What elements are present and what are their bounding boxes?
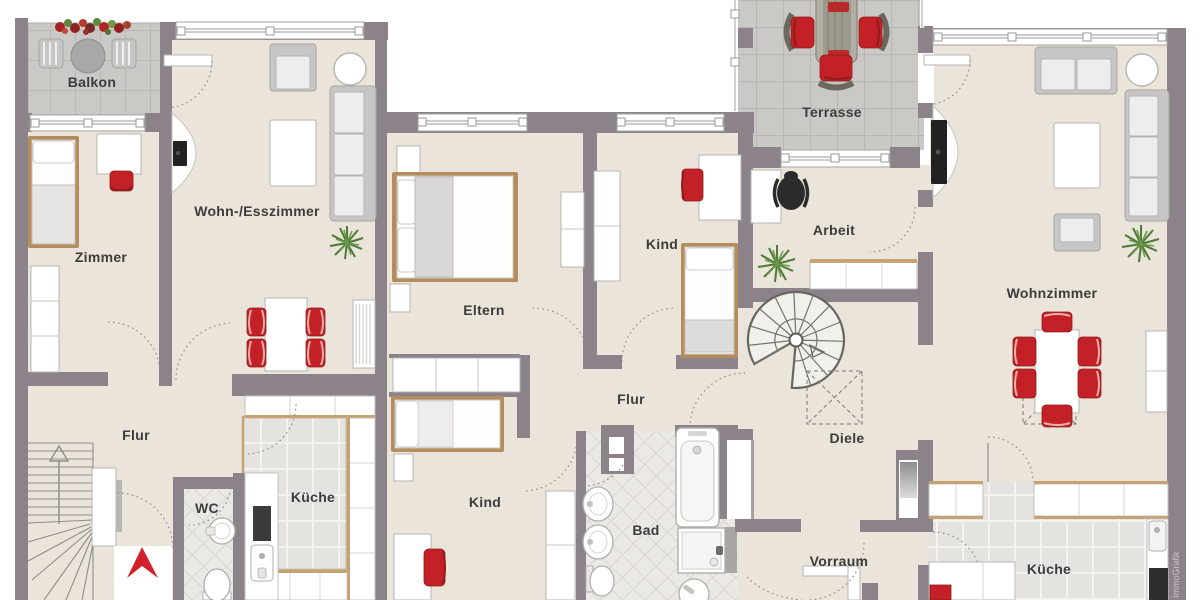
svg-text:Bad: Bad	[632, 522, 659, 538]
svg-text:Vorraum: Vorraum	[810, 553, 869, 569]
svg-text:Flur: Flur	[617, 391, 645, 407]
svg-text:Kind: Kind	[469, 494, 501, 510]
svg-text:WC: WC	[195, 500, 219, 516]
svg-text:Flur: Flur	[122, 427, 150, 443]
svg-text:Balkon: Balkon	[68, 74, 116, 90]
svg-text:Küche: Küche	[291, 489, 335, 505]
svg-text:Arbeit: Arbeit	[813, 222, 855, 238]
svg-text:Wohn-/Esszimmer: Wohn-/Esszimmer	[194, 203, 320, 219]
svg-text:Wohnzimmer: Wohnzimmer	[1007, 285, 1098, 301]
svg-text:Eltern: Eltern	[463, 302, 504, 318]
svg-text:ImmoGrafik: ImmoGrafik	[1171, 551, 1181, 598]
svg-text:Zimmer: Zimmer	[75, 249, 128, 265]
svg-text:Diele: Diele	[830, 430, 865, 446]
svg-text:Küche: Küche	[1027, 561, 1071, 577]
svg-text:Terrasse: Terrasse	[802, 104, 862, 120]
svg-text:Kind: Kind	[646, 236, 678, 252]
